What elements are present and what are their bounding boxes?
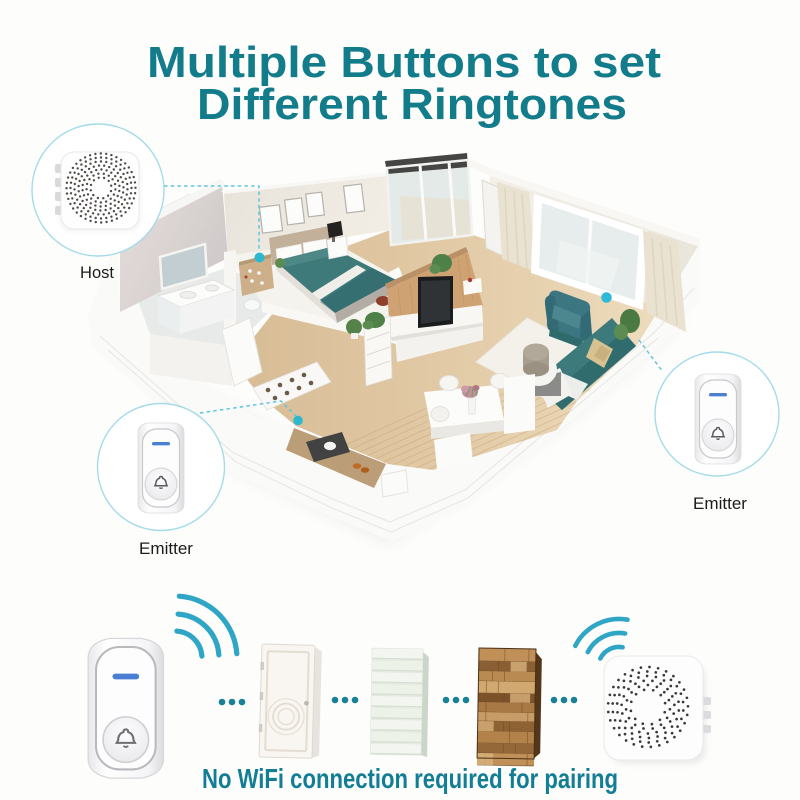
svg-text:Emitter: Emitter	[693, 495, 748, 513]
svg-text:Emitter: Emitter	[139, 540, 194, 558]
svg-text:No WiFi connection required fo: No WiFi connection required for pairing	[202, 763, 618, 794]
svg-text:Host: Host	[80, 264, 114, 282]
svg-text:Different Ringtones: Different Ringtones	[197, 80, 627, 129]
